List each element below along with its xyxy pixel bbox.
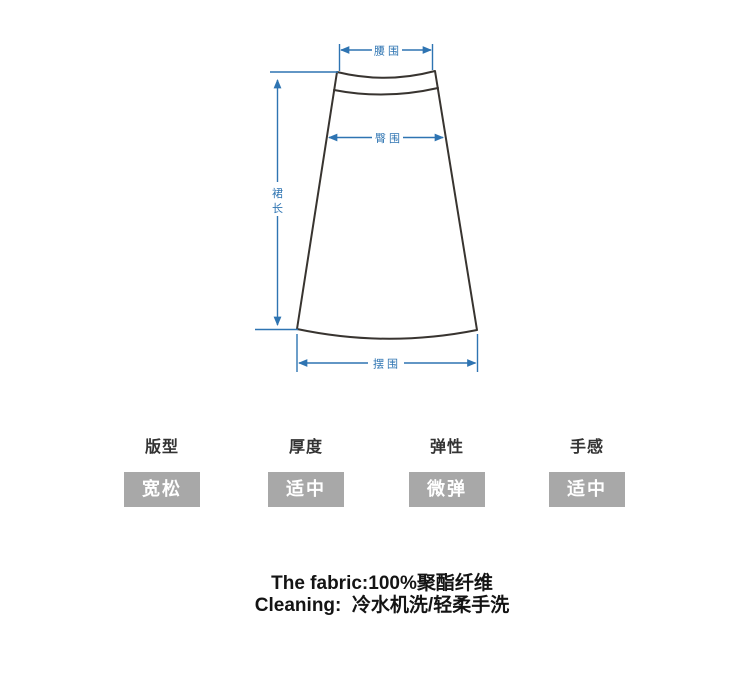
skirt-length-label-char1: 裙 (272, 187, 283, 200)
cleaning-instructions-text: Cleaning: 冷水机洗/轻柔手洗 (14, 595, 750, 617)
attribute-elasticity-value: 微弹 (409, 472, 485, 507)
waist-dimension: 腰围 (340, 44, 433, 71)
skirt-length-label-char2: 长 (272, 202, 283, 215)
attribute-fit-value: 宽松 (124, 472, 200, 507)
attribute-elasticity: 弹性 微弹 (382, 438, 512, 507)
attribute-thickness-label: 厚度 (241, 438, 371, 458)
attribute-handfeel-label: 手感 (522, 438, 652, 458)
skirt-outline (297, 71, 477, 339)
fabric-composition-text: The fabric:100%聚酯纤维 (14, 573, 750, 595)
skirt-body-path (297, 71, 477, 339)
skirt-measurement-diagram: 腰围 臀围 裙 长 摆围 (0, 0, 750, 420)
sweep-dimension-label: 摆围 (373, 357, 401, 371)
attribute-handfeel: 手感 适中 (522, 438, 652, 507)
product-size-detail-page: 腰围 臀围 裙 长 摆围 版型 宽松 厚度 (0, 0, 750, 695)
attribute-thickness: 厚度 适中 (241, 438, 371, 507)
attribute-fit-label: 版型 (97, 438, 227, 458)
attribute-thickness-value: 适中 (268, 472, 344, 507)
waist-dimension-label: 腰围 (374, 45, 402, 58)
hip-dimension-label: 臀围 (375, 132, 403, 145)
attribute-elasticity-label: 弹性 (382, 438, 512, 458)
attribute-handfeel-value: 适中 (549, 472, 625, 507)
fabric-info: The fabric:100%聚酯纤维 Cleaning: 冷水机洗/轻柔手洗 (0, 573, 750, 617)
attribute-fit: 版型 宽松 (97, 438, 227, 507)
